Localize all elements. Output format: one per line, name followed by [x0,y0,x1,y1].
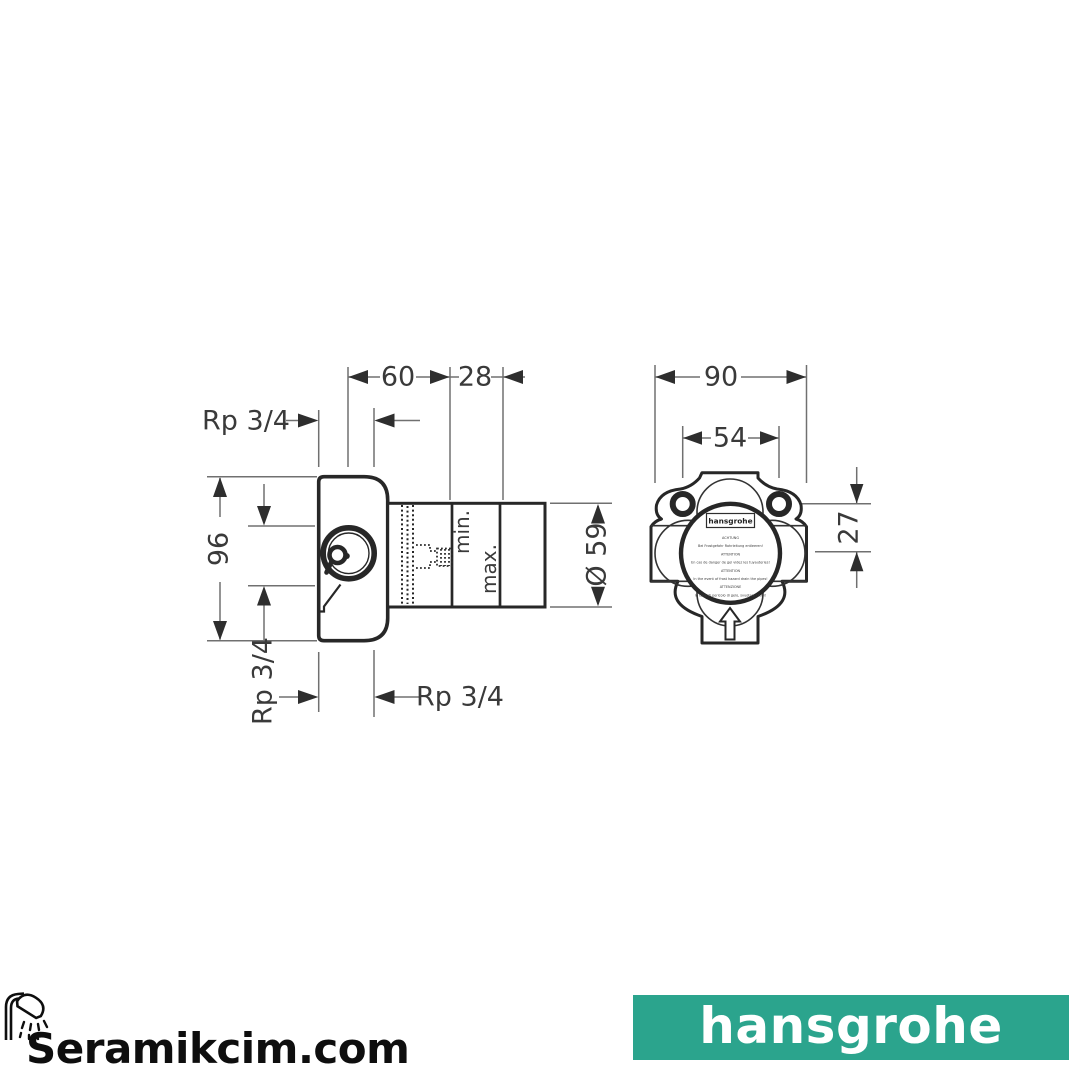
label-min: min. [450,510,474,554]
brand-banner-text: hansgrohe [699,1001,1003,1051]
page: 60 28 Rp 3/4 96 Rp 3/4 Rp 3/4 min. max. … [0,0,1080,1080]
dim-center-offset: 27 [834,510,865,544]
warning-line-3: ATTENTION [721,552,741,556]
warning-line-6: In the event of frost hazard drain the p… [693,577,767,581]
side-port [323,528,374,579]
dim-bottom-thread: Rp 3/4 [416,682,504,713]
label-max: max. [477,544,501,594]
warning-line-8: In caso di pericolo di gelo, svuotare i … [695,593,766,597]
brand-banner: hansgrohe [633,995,1069,1060]
dim-diameter: Ø 59 [582,522,613,586]
screw-hole-right [769,494,789,514]
warning-line-5: ATTENTION [721,569,741,573]
dim-top-thread: Rp 3/4 [202,406,290,437]
dim-hole-spacing: 54 [713,423,747,454]
store-logo-text: Seramikcim.com [26,1024,409,1073]
dim-top-width: 60 [381,362,415,393]
dim-top-depth: 28 [458,362,492,393]
dim-overall-width: 90 [704,362,738,393]
warning-line-1: ACHTUNG [722,536,739,540]
side-view: 60 28 Rp 3/4 96 Rp 3/4 Rp 3/4 min. max. … [202,362,612,725]
screw-hole-left [673,494,693,514]
warning-line-7: ATTENZIONE [720,585,742,589]
label-brand-text: hansgrohe [708,517,752,526]
warning-line-2: Bei Frostgefahr Rohrleitung entleeren! [698,544,763,548]
technical-drawing: 60 28 Rp 3/4 96 Rp 3/4 Rp 3/4 min. max. … [0,0,1080,1080]
warning-line-4: En cas de danger de gel videz les tuyaut… [691,561,770,565]
dim-side-thread: Rp 3/4 [248,637,279,725]
dim-height: 96 [204,532,235,566]
front-view: hansgrohe ACHTUNG Bei Frostgefahr Rohrle… [651,362,871,644]
